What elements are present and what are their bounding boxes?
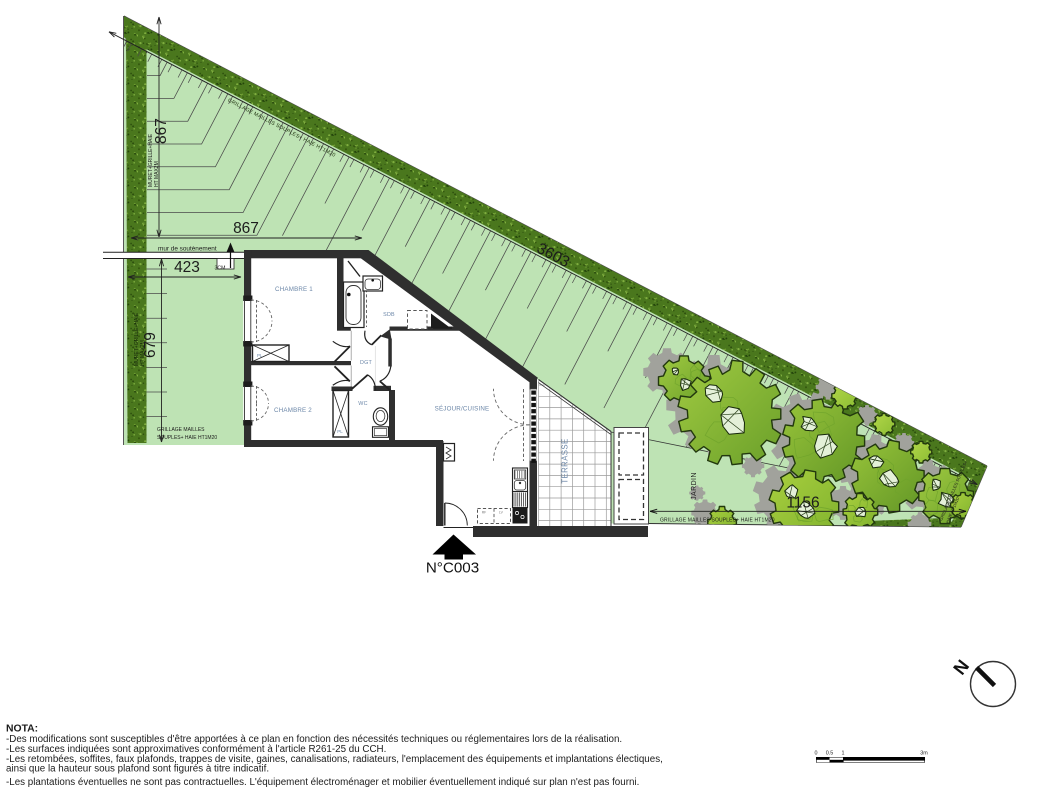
svg-text:0: 0 xyxy=(815,751,818,757)
svg-text:867: 867 xyxy=(233,220,259,237)
svg-text:N°C003: N°C003 xyxy=(426,560,479,577)
svg-text:TERRASSE: TERRASSE xyxy=(561,438,570,483)
svg-text:SOUPLES+ HAIE HT1M20: SOUPLES+ HAIE HT1M20 xyxy=(157,435,217,441)
svg-text:-Les plantations éventuelles n: -Les plantations éventuelles ne sont pas… xyxy=(6,777,639,788)
svg-text:mur de soutènement: mur de soutènement xyxy=(158,246,217,253)
svg-text:GRILLAGE MAILLES SOUPLES+ HAIE: GRILLAGE MAILLES SOUPLES+ HAIE HT1M20 xyxy=(660,518,775,524)
svg-text:1: 1 xyxy=(842,751,845,757)
svg-text:GRILLAGE MAILLES: GRILLAGE MAILLES xyxy=(157,427,205,433)
svg-text:3CM: 3CM xyxy=(215,266,226,272)
svg-text:PL: PL xyxy=(257,353,263,358)
svg-text:JARDIN: JARDIN xyxy=(691,472,698,500)
svg-text:CHAMBRE 1: CHAMBRE 1 xyxy=(275,286,313,293)
svg-text:WC: WC xyxy=(358,401,367,407)
svg-text:HT MAX2M: HT MAX2M xyxy=(140,340,146,366)
svg-text:SDB: SDB xyxy=(383,312,395,318)
svg-text:CHAMBRE 2: CHAMBRE 2 xyxy=(274,407,312,414)
svg-text:423: 423 xyxy=(174,259,200,276)
svg-text:HT MAX2M: HT MAX2M xyxy=(154,161,160,187)
svg-text:PL: PL xyxy=(337,429,343,434)
svg-text:1156: 1156 xyxy=(786,495,819,512)
svg-text:DGT: DGT xyxy=(360,360,372,366)
svg-text:RF: RF xyxy=(482,511,487,515)
svg-text:3m: 3m xyxy=(920,751,928,757)
svg-text:867: 867 xyxy=(153,118,170,144)
svg-text:N: N xyxy=(949,656,973,679)
svg-text:NOTA:: NOTA: xyxy=(6,724,38,735)
svg-text:0.5: 0.5 xyxy=(826,751,834,757)
svg-text:SÉJOUR/CUISINE: SÉJOUR/CUISINE xyxy=(435,406,490,413)
svg-text:ainsi que la hauteur sous plaf: ainsi que la hauteur sous plafond sont f… xyxy=(6,764,269,775)
